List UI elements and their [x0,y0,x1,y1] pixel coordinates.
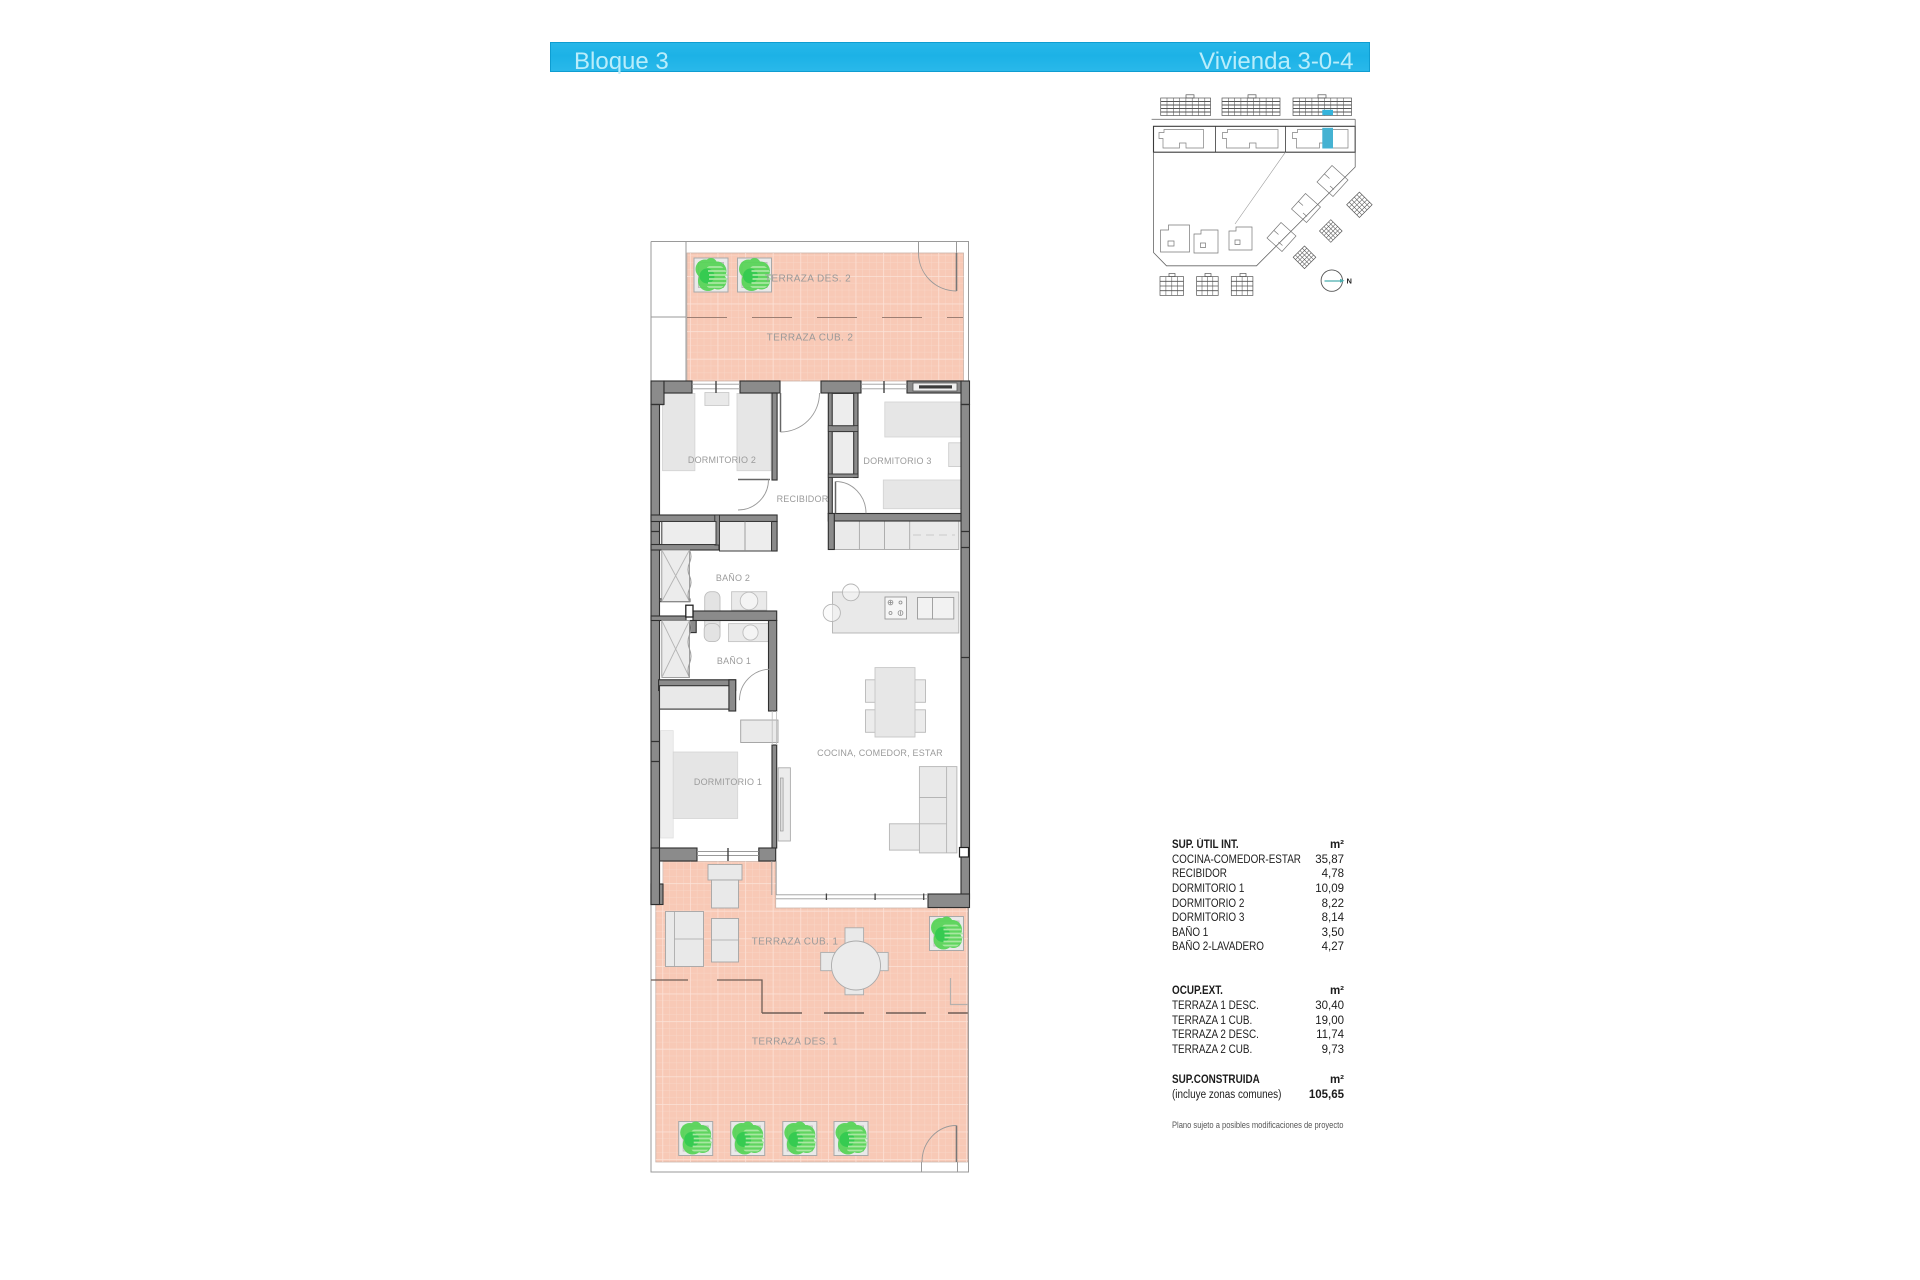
svg-text:RECIBIDOR: RECIBIDOR [777,494,829,504]
svg-text:TERRAZA DES. 2: TERRAZA DES. 2 [765,274,851,285]
svg-text:TERRAZA CUB. 2: TERRAZA CUB. 2 [767,333,854,344]
svg-text:BAÑO 2: BAÑO 2 [716,573,750,583]
svg-text:DORMITORIO 2: DORMITORIO 2 [688,455,756,465]
svg-text:BAÑO 1: BAÑO 1 [717,656,751,666]
svg-text:DORMITORIO 3: DORMITORIO 3 [863,456,931,466]
svg-text:DORMITORIO 1: DORMITORIO 1 [694,777,762,787]
svg-text:TERRAZA DES. 1: TERRAZA DES. 1 [752,1037,838,1048]
svg-text:TERRAZA CUB. 1: TERRAZA CUB. 1 [752,937,839,948]
svg-text:N: N [1347,277,1352,286]
svg-text:COCINA, COMEDOR, ESTAR: COCINA, COMEDOR, ESTAR [817,748,943,758]
